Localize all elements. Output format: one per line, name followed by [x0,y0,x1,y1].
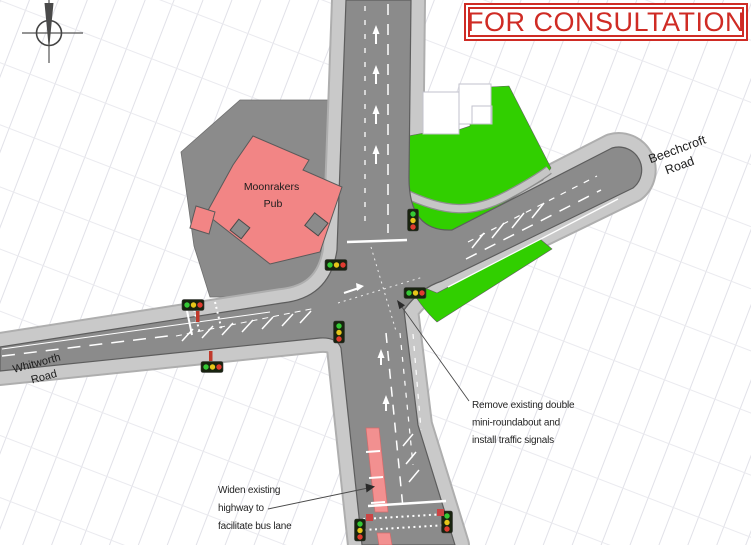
traffic-signal-icon [325,260,347,271]
traffic-signal-icon [408,209,419,231]
traffic-signal-icon [334,321,345,343]
signal-pole-mark [209,351,213,361]
junction-plan-map: Moonrakers Pub Whitworth Road Beechcroft… [0,0,751,545]
consultation-plan-canvas: Moonrakers Pub Whitworth Road Beechcroft… [0,0,751,545]
traffic-signal-icon [404,288,426,299]
consultation-banner: FOR CONSULTATION [464,3,748,41]
signal-pole-mark [437,509,444,516]
traffic-signal-icon [355,519,366,541]
traffic-signal-icon [182,300,204,311]
traffic-signal-icon [201,362,223,373]
signal-pole-mark [196,311,200,322]
consultation-banner-inner-border: FOR CONSULTATION [468,7,744,37]
consultation-banner-text: FOR CONSULTATION [467,7,745,38]
signal-pole-mark [366,514,373,521]
